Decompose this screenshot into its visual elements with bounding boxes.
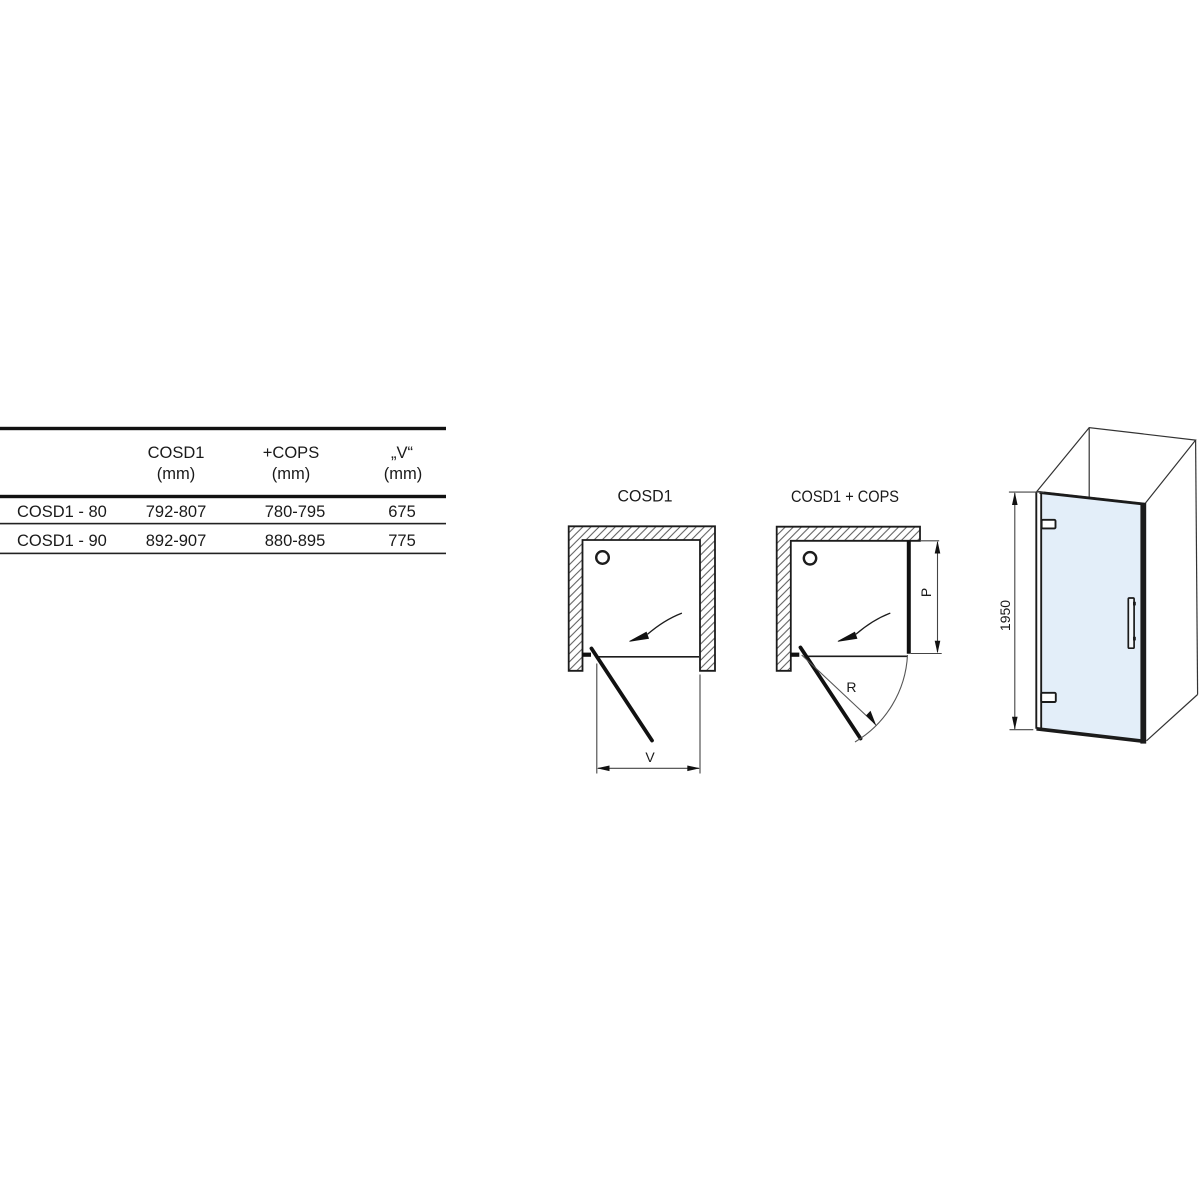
svg-text:COSD1 - 90: COSD1 - 90: [17, 532, 107, 550]
svg-text:(mm): (mm): [157, 465, 195, 483]
svg-text:R: R: [846, 679, 856, 695]
svg-text:775: 775: [388, 532, 416, 550]
svg-text:COSD1 + COPS: COSD1 + COPS: [791, 488, 899, 506]
svg-text:780-795: 780-795: [265, 503, 326, 521]
svg-text:675: 675: [388, 503, 416, 521]
svg-text:„V“: „V“: [391, 444, 413, 462]
svg-text:(mm): (mm): [272, 465, 310, 483]
svg-text:+COPS: +COPS: [263, 444, 319, 462]
svg-text:COSD1: COSD1: [618, 488, 673, 506]
svg-text:1950: 1950: [997, 600, 1013, 631]
svg-text:(mm): (mm): [384, 465, 422, 483]
svg-text:COSD1 - 80: COSD1 - 80: [17, 503, 107, 521]
svg-text:892-907: 892-907: [146, 532, 207, 550]
svg-text:COSD1: COSD1: [148, 444, 205, 462]
svg-text:792-807: 792-807: [146, 503, 207, 521]
svg-text:P: P: [918, 588, 934, 597]
svg-text:V: V: [645, 749, 655, 765]
svg-text:880-895: 880-895: [265, 532, 326, 550]
